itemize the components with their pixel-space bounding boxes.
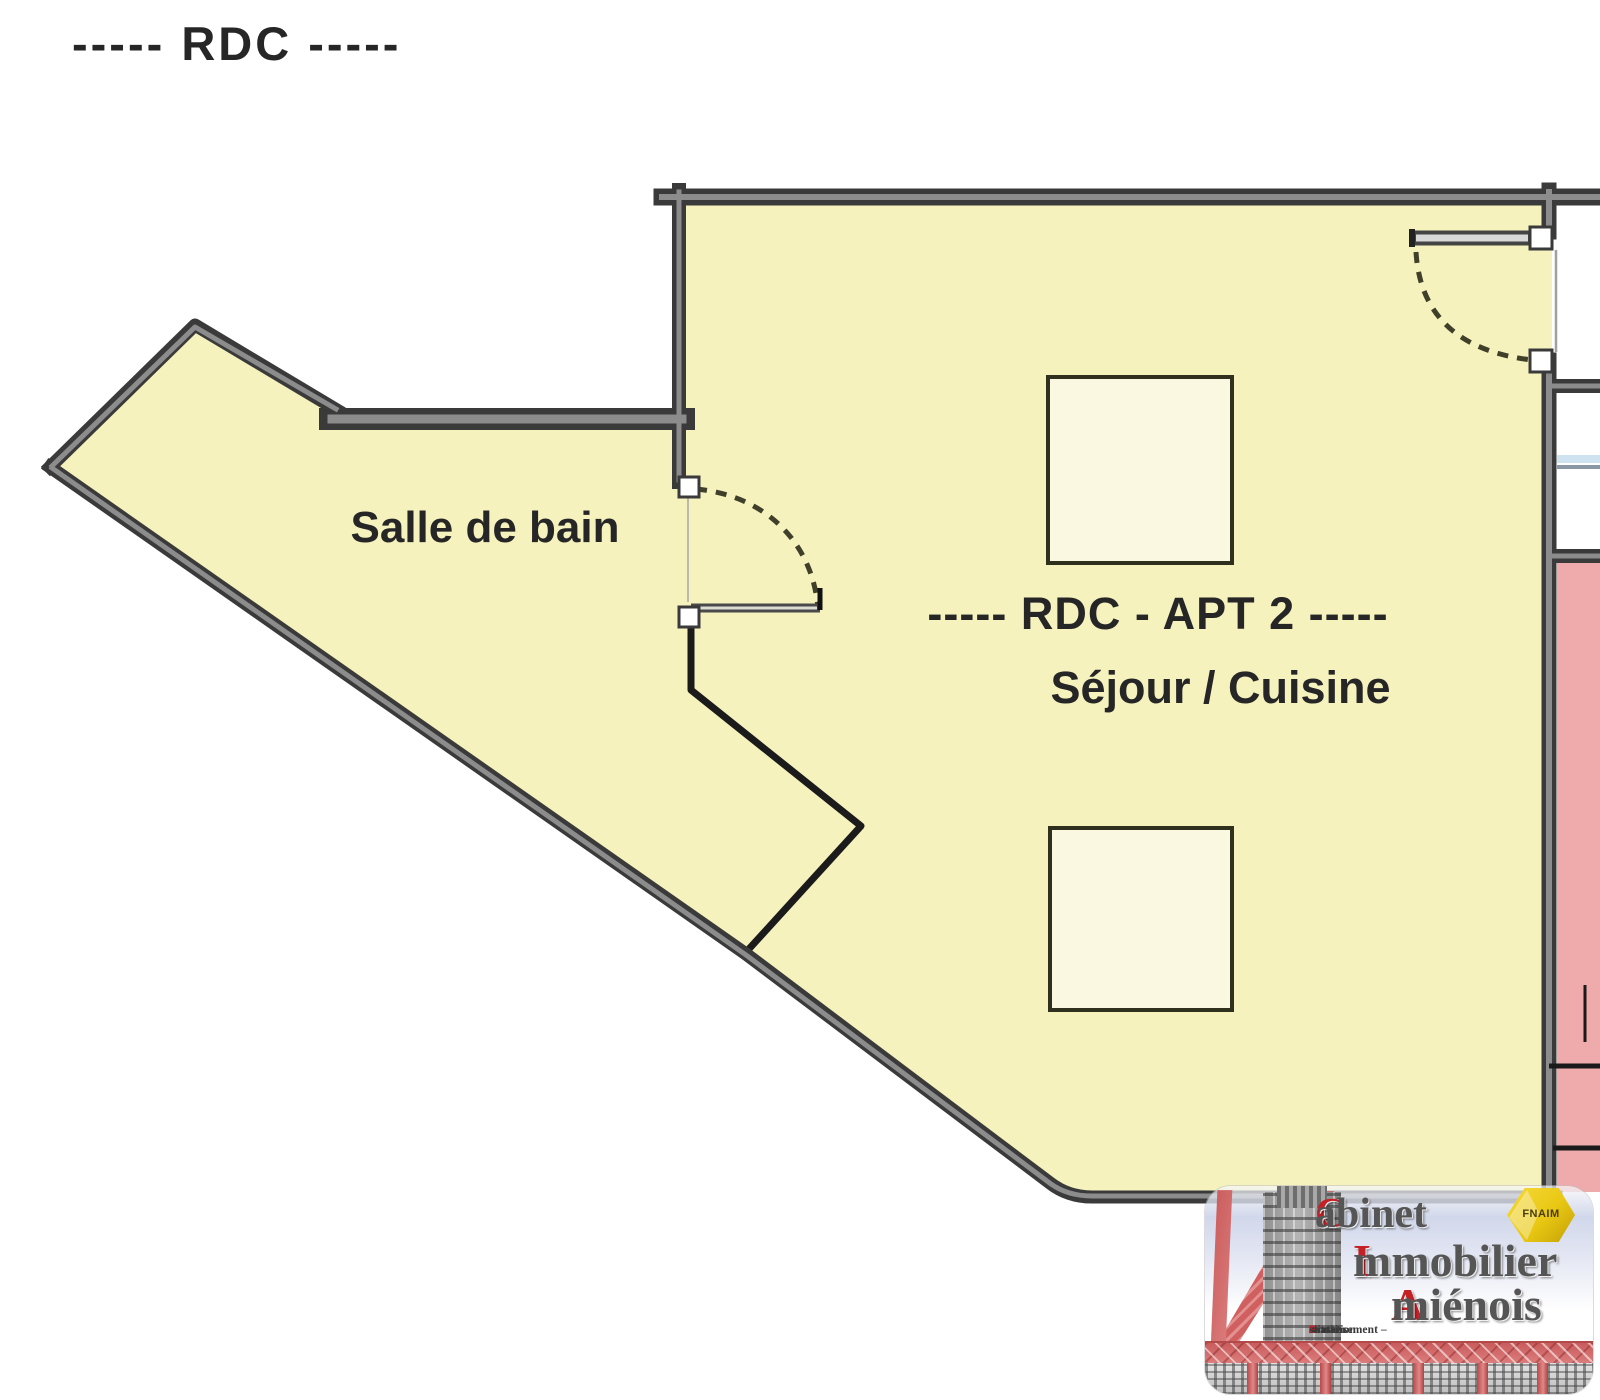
facade-red-post xyxy=(1413,1363,1424,1394)
door-hinge-square xyxy=(1530,227,1552,249)
facade-red-post xyxy=(1320,1363,1331,1394)
tagline-text: stimation xyxy=(1309,1324,1356,1336)
neighbour-room-pink xyxy=(1557,562,1600,1192)
window-glass xyxy=(1557,455,1600,463)
room-label-apartment: ----- RDC - APT 2 ----- xyxy=(858,588,1458,640)
column-square-upper xyxy=(1048,377,1232,563)
room-label-living-kitchen: Séjour / Cuisine xyxy=(1018,662,1423,714)
door-hinge-square xyxy=(679,607,699,627)
building-facade-strip xyxy=(1205,1363,1593,1394)
facade-red-post xyxy=(1247,1363,1258,1394)
door-hinge-square xyxy=(679,477,699,497)
agency-logo: Cabinet Immobilier Amiénois Achat – Vent… xyxy=(1205,1186,1593,1394)
fnaim-badge-label: FNAIM xyxy=(1507,1208,1575,1220)
floor-title: ----- RDC ----- xyxy=(72,16,401,71)
room-label-bathroom: Salle de bain xyxy=(320,503,650,553)
brand-text: abinet xyxy=(1315,1190,1427,1238)
facade-red-post xyxy=(1537,1363,1548,1394)
floor-plan-page: ----- RDC ----- Salle de bain ----- RDC … xyxy=(0,0,1600,1400)
door-hinge-square xyxy=(1530,350,1552,372)
column-square-lower xyxy=(1050,828,1232,1010)
red-truss-band xyxy=(1205,1341,1593,1365)
facade-red-post xyxy=(1477,1363,1488,1394)
brand-text: miénois xyxy=(1391,1278,1542,1331)
